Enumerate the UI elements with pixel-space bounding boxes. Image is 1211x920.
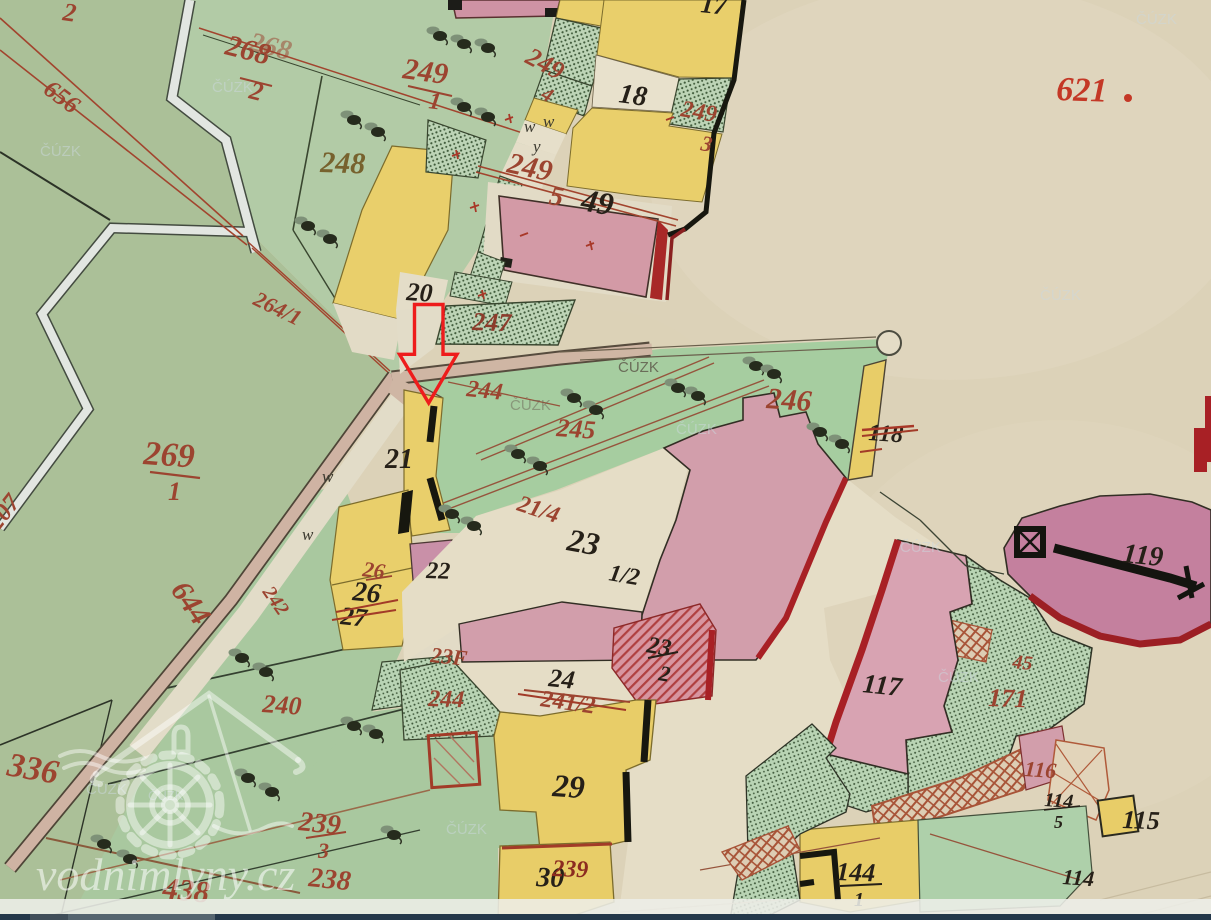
svg-text:21: 21 — [384, 444, 413, 475]
svg-text:115: 115 — [1122, 805, 1161, 835]
svg-text:116: 116 — [1024, 756, 1057, 783]
svg-text:621: 621 — [1056, 71, 1108, 110]
svg-text:23: 23 — [564, 521, 603, 562]
svg-text:144: 144 — [836, 857, 876, 887]
svg-text:w: w — [322, 467, 334, 486]
svg-text:1: 1 — [168, 477, 181, 506]
svg-text:w: w — [543, 112, 555, 131]
svg-text:5: 5 — [1054, 812, 1063, 832]
svg-text:49: 49 — [578, 181, 617, 222]
svg-text:239: 239 — [551, 856, 589, 883]
svg-text:117: 117 — [861, 668, 904, 702]
svg-text:171: 171 — [988, 683, 1028, 713]
svg-text:ČÚZK: ČÚZK — [1136, 11, 1177, 28]
svg-text:245: 245 — [555, 413, 597, 445]
svg-text:119: 119 — [1121, 538, 1164, 573]
svg-text:3: 3 — [317, 838, 329, 863]
svg-text:248: 248 — [319, 146, 366, 181]
svg-text:17: 17 — [699, 0, 729, 21]
svg-text:ČÚZK: ČÚZK — [446, 821, 487, 838]
svg-text:y: y — [531, 137, 541, 156]
svg-text:ČÚZK: ČÚZK — [40, 143, 81, 160]
svg-text:45: 45 — [1010, 651, 1033, 675]
svg-text:247: 247 — [471, 307, 513, 337]
svg-text:246: 246 — [765, 382, 813, 418]
svg-text:ČÚZK: ČÚZK — [676, 421, 717, 438]
svg-text:23F: 23F — [428, 642, 468, 671]
svg-text:238: 238 — [306, 862, 352, 897]
svg-text:ČÚZK: ČÚZK — [510, 397, 551, 414]
svg-text:18: 18 — [617, 78, 649, 113]
svg-text:249: 249 — [400, 52, 450, 91]
svg-text:w: w — [524, 117, 536, 136]
svg-text:24: 24 — [546, 663, 576, 695]
svg-text:269: 269 — [141, 435, 195, 476]
svg-text:29: 29 — [551, 767, 586, 805]
svg-text:22: 22 — [425, 558, 451, 585]
svg-text:240: 240 — [261, 689, 303, 721]
svg-text:ČÚZK: ČÚZK — [212, 79, 253, 96]
svg-text:244: 244 — [464, 376, 504, 406]
svg-text:244: 244 — [427, 686, 465, 713]
svg-text:w: w — [302, 525, 314, 544]
svg-text:114: 114 — [1062, 864, 1095, 891]
svg-text:ČÚZK: ČÚZK — [1040, 287, 1081, 304]
svg-text:ČÚZK: ČÚZK — [618, 359, 659, 376]
svg-text:1/2: 1/2 — [607, 560, 642, 591]
svg-text:vodnimlyny.cz: vodnimlyny.cz — [36, 849, 295, 900]
svg-text:ČÚZK: ČÚZK — [900, 539, 941, 556]
svg-text:ČÚZK: ČÚZK — [938, 669, 979, 686]
